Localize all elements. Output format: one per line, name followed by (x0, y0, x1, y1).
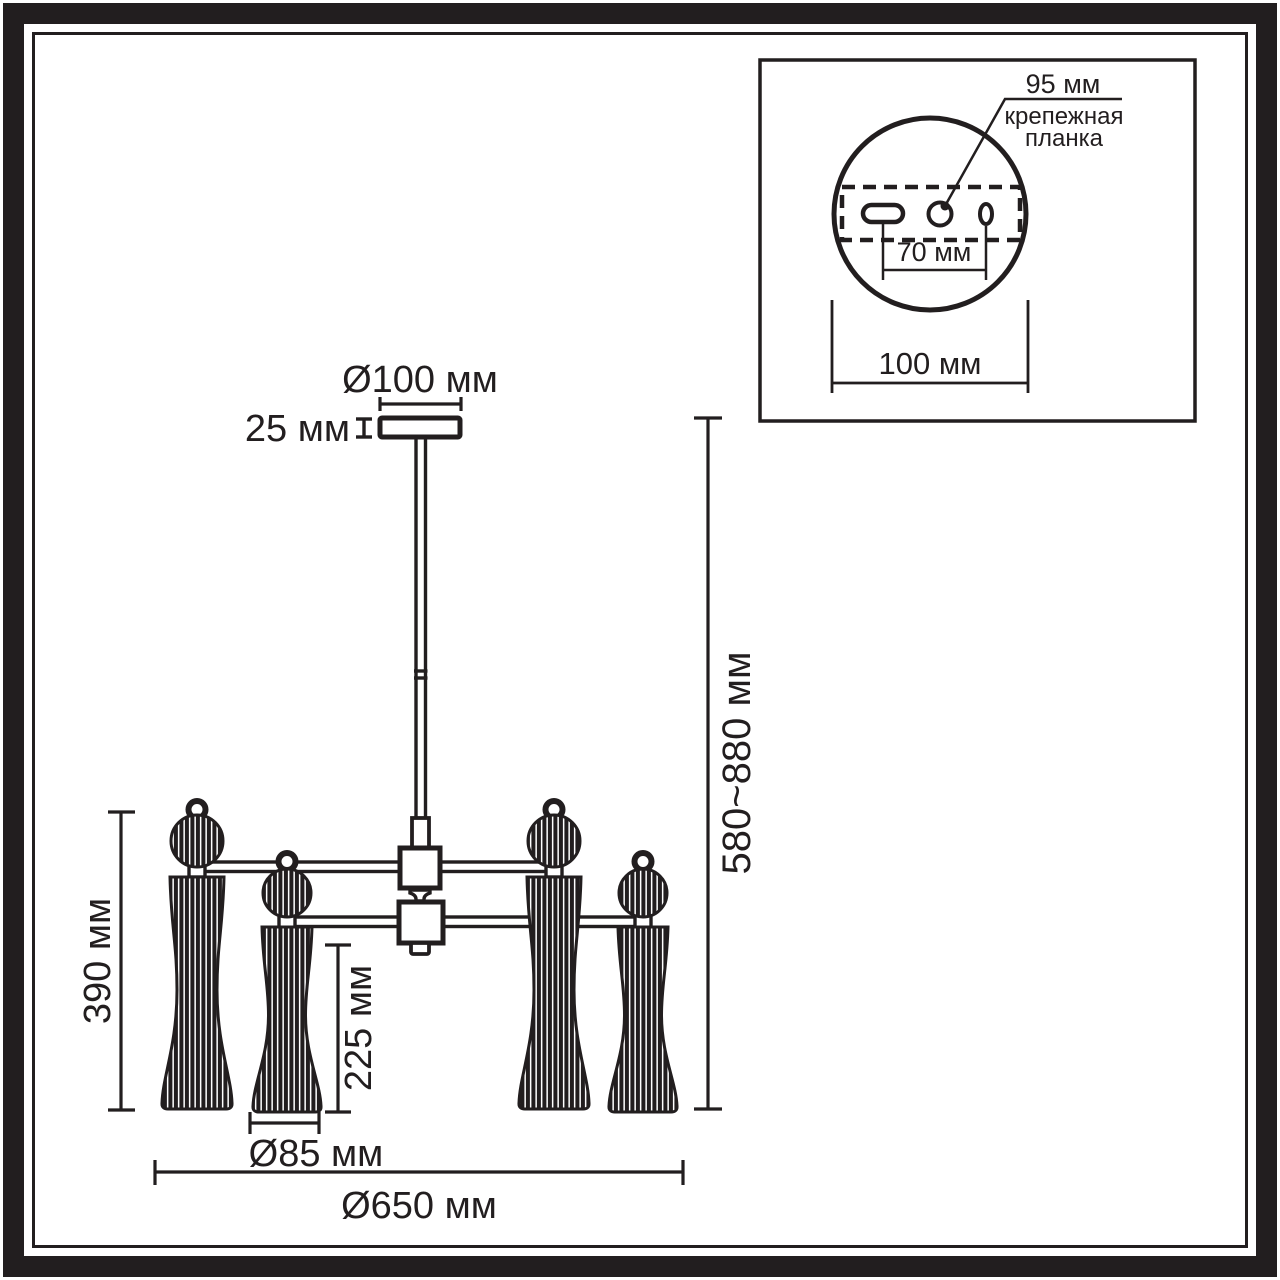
lamp-front-right (609, 853, 677, 1112)
ceiling-mount-inset: 95 мм крепежная планка 70 мм 100 мм (760, 60, 1195, 421)
center-hub (399, 848, 443, 954)
lamp-shade (609, 927, 677, 1112)
dim-shade-diameter-label: Ø85 мм (249, 1133, 384, 1175)
hub-upper-block (400, 848, 440, 888)
dim-hole-spacing-label: 70 мм (897, 237, 972, 267)
main-elevation: Ø100 мм 25 мм (77, 359, 759, 1227)
lamp-sphere (263, 869, 311, 917)
lamp-loop-icon (635, 853, 652, 870)
dim-overall-height-label: 580~880 мм (715, 652, 759, 875)
lamp-front-left (253, 853, 321, 1112)
dim-inset-canopy-diameter-label: 100 мм (879, 346, 982, 381)
lamp-loop-icon (279, 853, 296, 870)
dim-lamp-height-label: 390 мм (77, 898, 119, 1024)
lamp-back-right (519, 801, 589, 1109)
technical-drawing-page: Ø100 мм 25 мм (0, 0, 1280, 1280)
bracket-name-line2: планка (1025, 125, 1104, 152)
lamp-sphere (171, 815, 223, 867)
lamp-shade (519, 877, 589, 1109)
dim-bracket-length-label: 95 мм (1026, 69, 1101, 99)
hub-connector (410, 890, 430, 901)
lamp-sphere (619, 869, 667, 917)
hub-bottom-tab (411, 943, 429, 954)
dim-fixture-diameter (155, 1160, 683, 1185)
lamp-shade (253, 927, 321, 1112)
arm-bar-upper (197, 862, 554, 872)
bracket-slot (863, 205, 903, 222)
dim-canopy-height-label: 25 мм (245, 408, 350, 450)
lamp-shade (162, 877, 232, 1109)
rod-sleeve (412, 818, 429, 848)
dim-canopy-diameter-label: Ø100 мм (342, 359, 498, 401)
suspension-rod (414, 437, 428, 818)
dim-shade-diameter (250, 1112, 319, 1134)
ceiling-canopy (380, 418, 460, 437)
lamp-sphere (528, 815, 580, 867)
chandelier-dimension-drawing: Ø100 мм 25 мм (0, 0, 1280, 1280)
hub-lower-block (399, 902, 443, 943)
dim-fixture-diameter-label: Ø650 мм (341, 1185, 497, 1227)
dim-canopy-height-mark (356, 419, 372, 437)
lamp-back-left (162, 801, 232, 1109)
arm-bar-lower (287, 917, 643, 927)
dim-shade-height-label: 225 мм (338, 965, 380, 1091)
bracket-oval-hole (980, 204, 992, 224)
leader-dot-icon (941, 202, 950, 211)
